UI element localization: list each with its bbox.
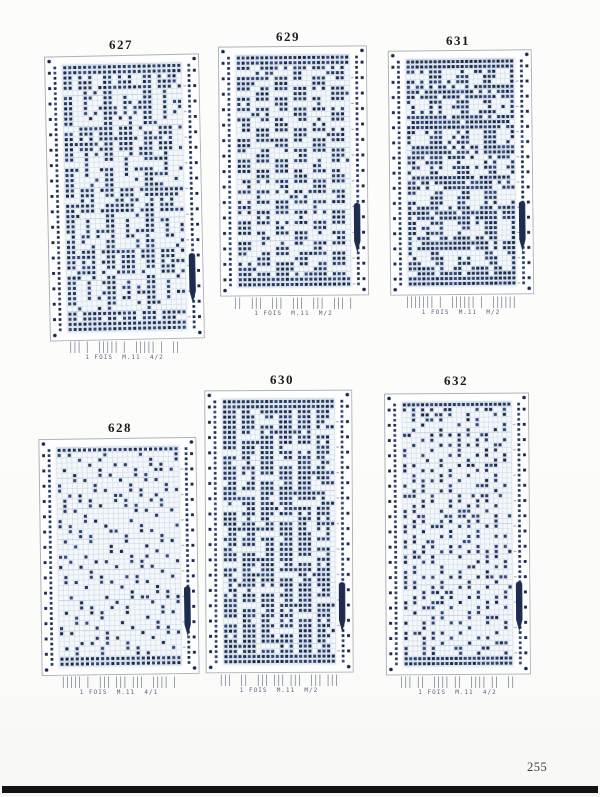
punch-card <box>218 45 369 296</box>
card-caption: 1 FOIS M.11 M/2 <box>240 687 318 694</box>
row-ticks: ||||| | ||| ||| ||| |||| | <box>61 678 176 689</box>
card-number: 629 <box>276 29 300 45</box>
scanned-book-page: 627||| | ||||| | ||||| | ||1 FOIS M.11 4… <box>0 0 600 797</box>
card-caption: 1 FOIS M.11 M/2 <box>254 310 332 317</box>
card-number: 630 <box>270 372 294 388</box>
punch-card <box>388 49 535 295</box>
punch-card <box>384 392 531 675</box>
row-ticks: || ||| ||| ||| ||| ||| | <box>234 299 353 310</box>
card-number: 627 <box>109 37 133 53</box>
row-ticks: ||| | ||||| | ||||| | || <box>69 343 180 354</box>
row-ticks: ||| || |||| || |||| || || <box>400 678 515 689</box>
punch-card <box>204 390 353 674</box>
page-number: 255 <box>527 760 547 775</box>
scan-edge-bar <box>2 786 598 793</box>
row-ticks: ||||||| | |||||| | |||||| <box>405 298 516 309</box>
card-number: 628 <box>108 420 132 436</box>
card-caption: 1 FOIS M.11 4/2 <box>418 689 496 696</box>
row-ticks: ||| || ||| ||| ||| ||| ||| <box>219 676 338 687</box>
card-caption: 1 FOIS M.11 4/2 <box>85 354 163 361</box>
card-caption: 1 FOIS M.11 4/1 <box>80 689 158 696</box>
card-caption: 1 FOIS M.11 M/2 <box>422 309 500 316</box>
punch-card <box>38 437 199 676</box>
punch-card <box>44 53 205 341</box>
card-number: 631 <box>446 33 470 49</box>
card-number: 632 <box>444 373 468 389</box>
